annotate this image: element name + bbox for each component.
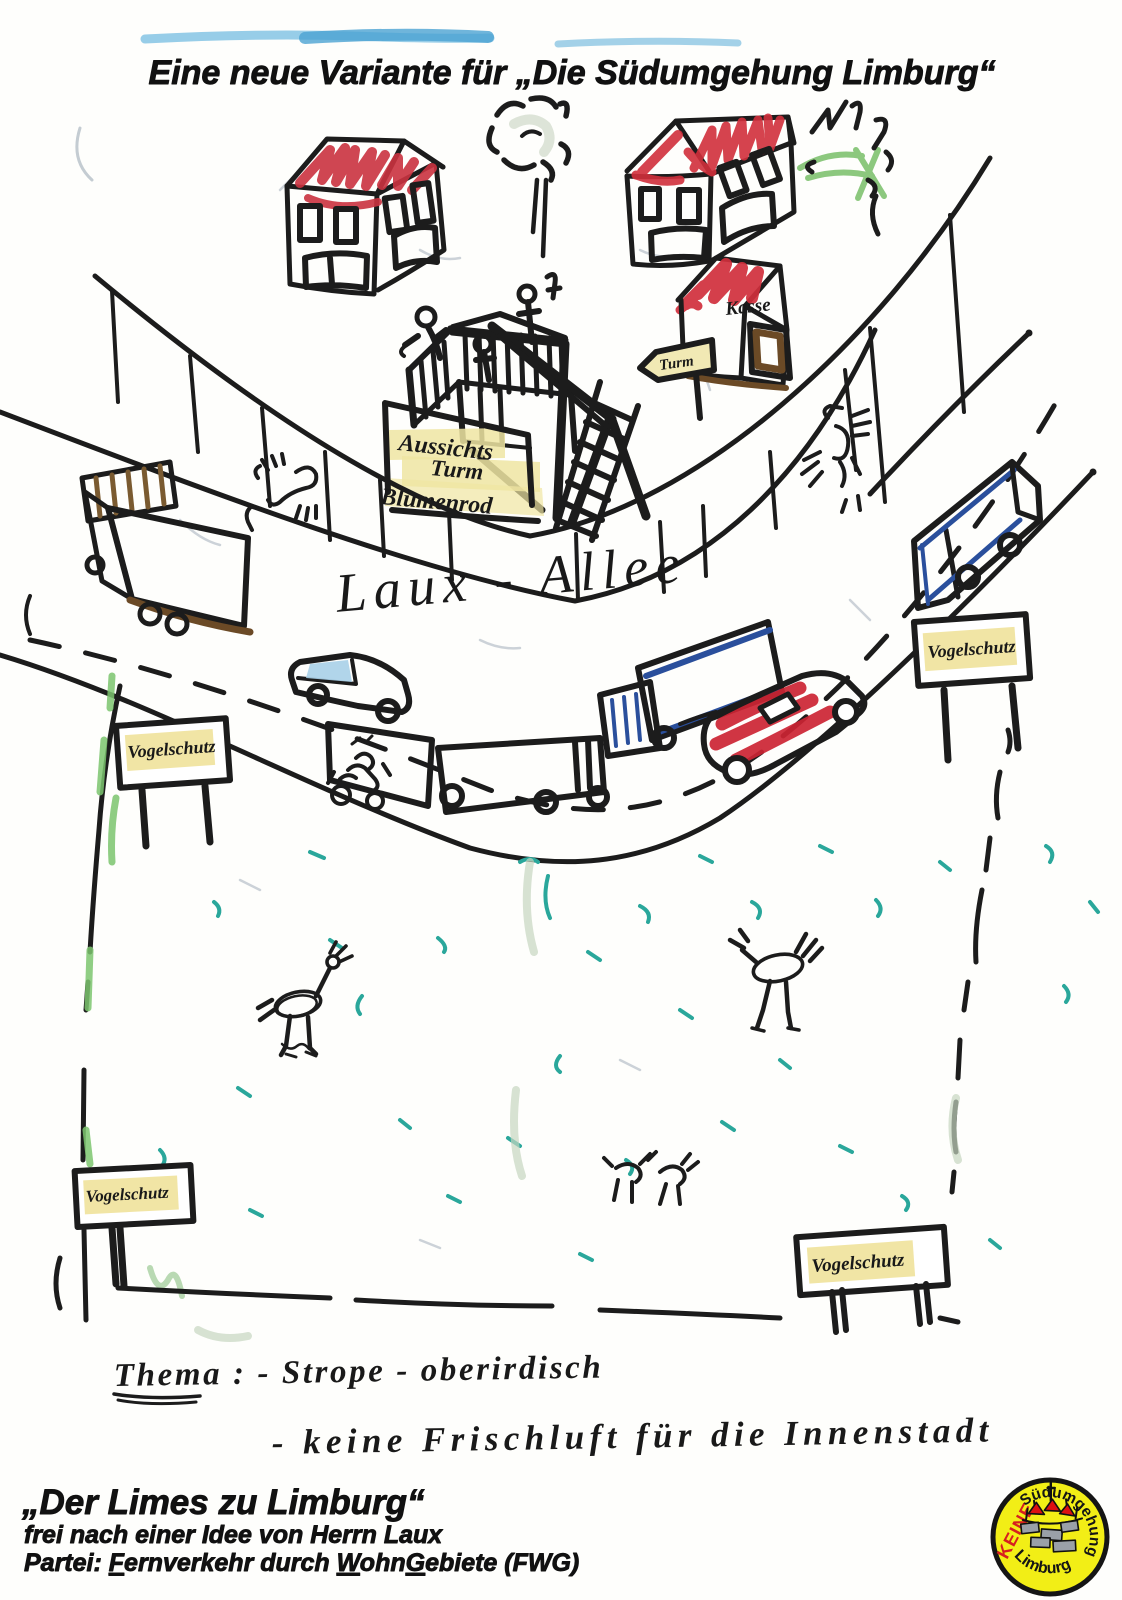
svg-text:Partei: Fernverkehr durch Wohn: Partei: Fernverkehr durch WohnGebiete (F… xyxy=(24,1549,579,1577)
svg-text:frei nach einer Idee von Herrn: frei nach einer Idee von Herrn Laux xyxy=(24,1521,443,1549)
svg-text:Eine neue Variante für „Die Sü: Eine neue Variante für „Die Südumgehung … xyxy=(149,54,996,92)
svg-text:Turm: Turm xyxy=(430,455,485,485)
svg-text:„Der Limes zu Limburg“: „Der Limes zu Limburg“ xyxy=(21,1483,425,1522)
